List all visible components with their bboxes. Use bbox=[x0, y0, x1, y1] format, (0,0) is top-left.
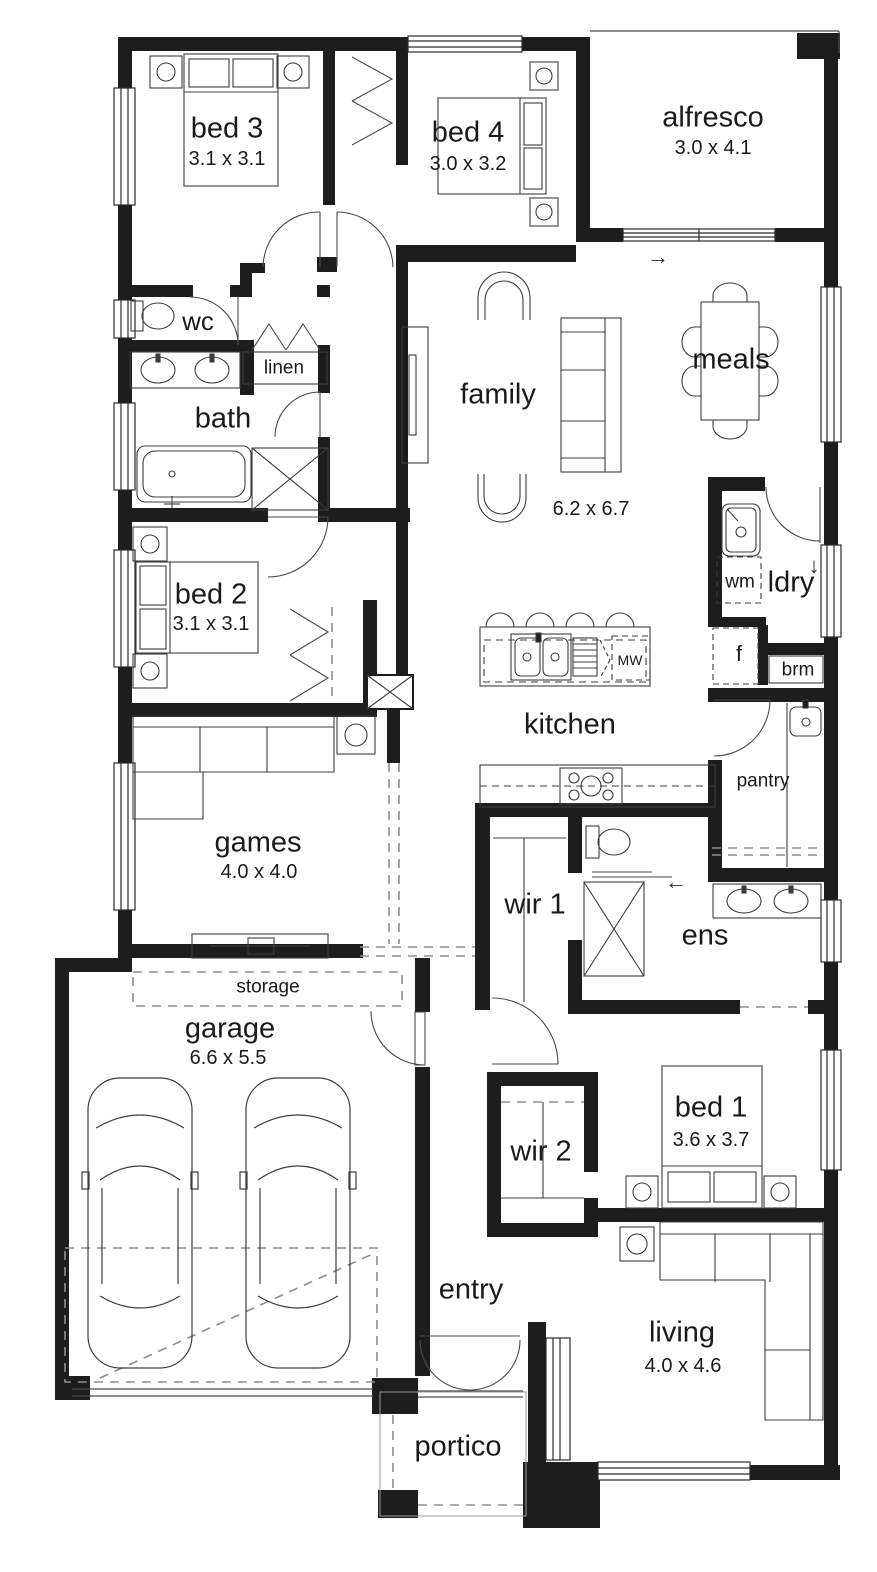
room-label-living: living bbox=[649, 1319, 715, 1348]
room-label-wm: wm bbox=[725, 573, 755, 592]
window-bed4 bbox=[408, 36, 522, 52]
car-right bbox=[240, 1078, 356, 1368]
ens-toilet bbox=[586, 826, 630, 858]
door-hall bbox=[492, 998, 558, 1064]
room-label-bed4: bed 4 bbox=[432, 119, 505, 148]
bath-shower bbox=[252, 448, 328, 510]
ens-shower bbox=[584, 882, 644, 976]
room-label-meals: meals bbox=[692, 346, 769, 375]
dim-label-bed1: 3.6 x 3.7 bbox=[673, 1130, 750, 1150]
games-side-table bbox=[337, 716, 375, 754]
room-label-alfresco: alfresco bbox=[662, 104, 764, 133]
arrow-left-icon: ← bbox=[665, 871, 687, 893]
window-bed2 bbox=[114, 550, 135, 667]
dim-label-family: 6.2 x 6.7 bbox=[553, 499, 630, 519]
window-games bbox=[114, 763, 135, 910]
window-living bbox=[598, 1462, 750, 1480]
room-label-bed3: bed 3 bbox=[191, 115, 264, 144]
window-bath bbox=[114, 403, 135, 490]
door-ens-slider bbox=[592, 872, 672, 877]
room-label-wir1: wir 1 bbox=[504, 891, 565, 920]
room-label-wc: wc bbox=[182, 308, 214, 334]
door-bed3 bbox=[263, 212, 320, 267]
window-bed3 bbox=[114, 88, 135, 205]
bifold-hall-robe bbox=[352, 57, 392, 145]
door-pantry bbox=[714, 700, 770, 756]
garage-door-recess bbox=[65, 1248, 377, 1382]
room-label-brm: brm bbox=[782, 661, 815, 680]
door-bath bbox=[275, 392, 320, 437]
room-label-bath: bath bbox=[195, 405, 251, 434]
room-label-kitchen: kitchen bbox=[524, 711, 616, 740]
dim-label-bed4: 3.0 x 3.2 bbox=[430, 154, 507, 174]
games-sofa bbox=[133, 716, 334, 819]
ens-vanity bbox=[713, 884, 821, 918]
room-label-storage: storage bbox=[236, 978, 299, 997]
room-label-bed2: bed 2 bbox=[175, 581, 248, 610]
room-label-wir2: wir 2 bbox=[510, 1138, 571, 1167]
room-label-games: games bbox=[214, 829, 301, 858]
family-armchair-bottom bbox=[478, 474, 526, 522]
bath-tub bbox=[137, 446, 251, 508]
room-label-linen: linen bbox=[264, 359, 304, 378]
window-ens bbox=[821, 900, 841, 962]
kitchen-island bbox=[480, 613, 650, 686]
pantry-fittings bbox=[787, 700, 821, 867]
room-label-family: family bbox=[460, 381, 536, 410]
door-ldry bbox=[766, 487, 820, 543]
family-armchair-top bbox=[478, 272, 530, 320]
window-ldry bbox=[821, 545, 841, 637]
room-label-bed1: bed 1 bbox=[675, 1094, 748, 1123]
dim-label-living: 4.0 x 4.6 bbox=[645, 1356, 722, 1376]
floor-plan: bed 3 3.1 x 3.1 bed 4 3.0 x 3.2 alfresco… bbox=[0, 0, 877, 1572]
window-meals bbox=[821, 287, 841, 442]
door-bed4 bbox=[337, 212, 393, 267]
arrow-right-icon: → bbox=[647, 246, 669, 268]
door-bed2 bbox=[268, 517, 328, 577]
living-side-table bbox=[620, 1227, 654, 1261]
bifold-bed2-robe bbox=[290, 609, 328, 701]
dim-label-alfresco: 3.0 x 4.1 bbox=[675, 138, 752, 158]
dim-label-garage: 6.6 x 5.5 bbox=[190, 1048, 267, 1068]
ldry-trough bbox=[722, 504, 760, 556]
dim-label-bed3: 3.1 x 3.1 bbox=[189, 149, 266, 169]
family-sofa bbox=[561, 318, 621, 472]
label-microwave: MW bbox=[618, 653, 643, 667]
arrow-down-icon: ↓ bbox=[809, 555, 820, 577]
room-label-ldry: ldry bbox=[768, 569, 815, 598]
room-label-fridge: f bbox=[736, 643, 742, 665]
room-label-garage: garage bbox=[185, 1015, 275, 1044]
room-label-ens: ens bbox=[682, 922, 729, 951]
car-left bbox=[82, 1078, 198, 1368]
window-entry-sidelight bbox=[546, 1338, 570, 1460]
bath-vanity bbox=[130, 352, 240, 388]
window-bed1 bbox=[821, 1050, 841, 1170]
room-label-entry: entry bbox=[439, 1276, 503, 1305]
dim-label-bed2: 3.1 x 3.1 bbox=[173, 614, 250, 634]
window-alfresco-slider bbox=[623, 229, 775, 241]
door-garage bbox=[371, 1011, 425, 1065]
dim-label-games: 4.0 x 4.0 bbox=[221, 862, 298, 882]
kitchen-bench bbox=[480, 765, 715, 807]
room-label-portico: portico bbox=[414, 1433, 501, 1462]
door-entry bbox=[420, 1336, 520, 1390]
bifold-linen bbox=[252, 324, 320, 350]
room-label-pantry: pantry bbox=[737, 772, 790, 791]
duct-box bbox=[367, 675, 413, 709]
window-wc bbox=[114, 300, 135, 338]
wc-toilet bbox=[131, 301, 174, 331]
